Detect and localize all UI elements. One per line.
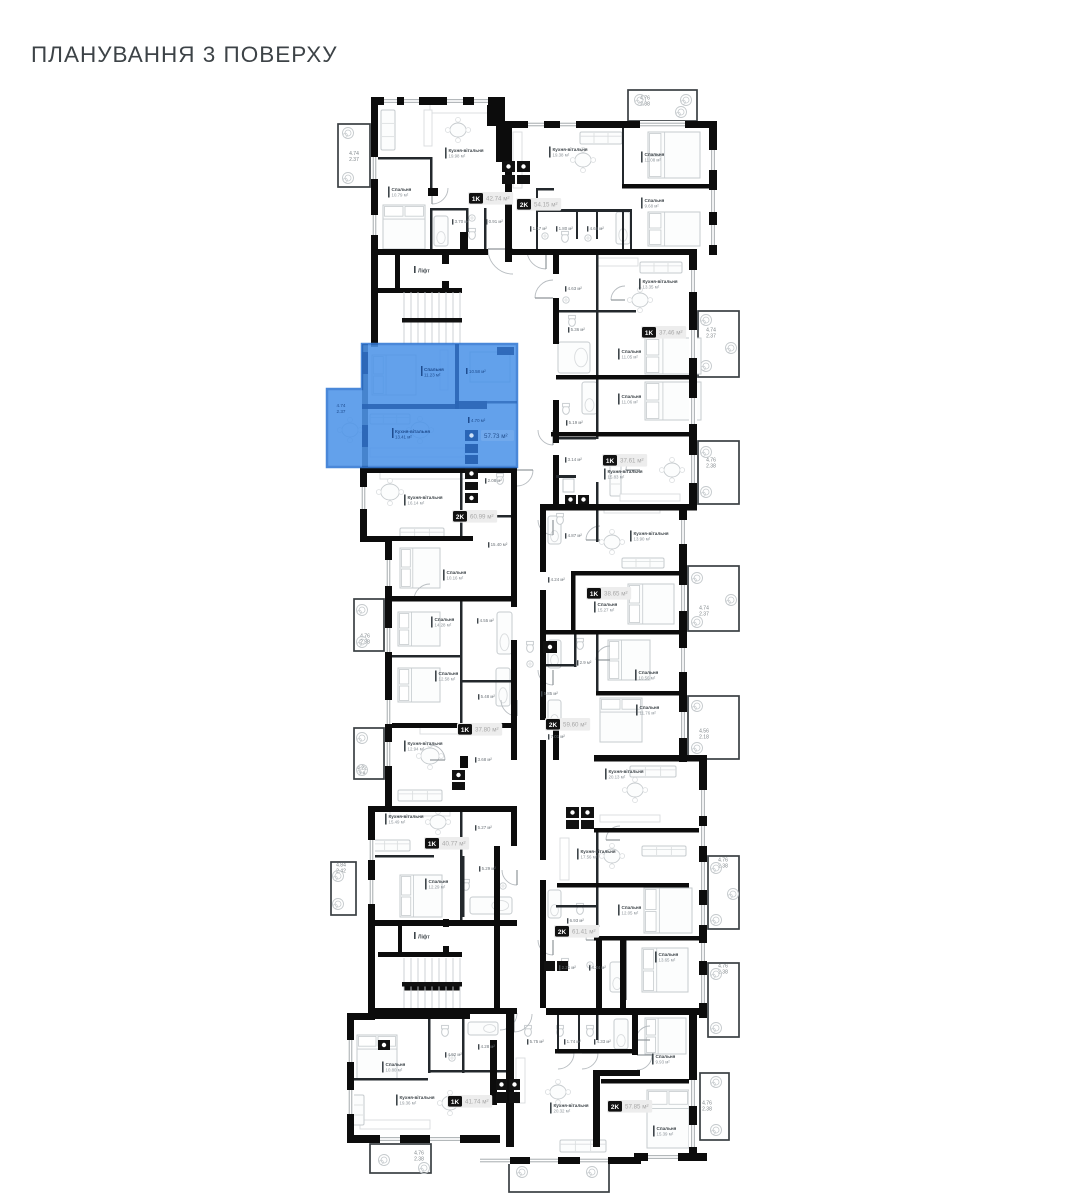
svg-text:13.90 м²: 13.90 м² — [634, 537, 651, 542]
svg-text:57.73 м²: 57.73 м² — [484, 433, 508, 440]
svg-text:12.94 м²: 12.94 м² — [408, 747, 425, 752]
svg-text:2.37: 2.37 — [337, 409, 346, 414]
svg-text:19.36 м²: 19.36 м² — [400, 1101, 417, 1106]
svg-text:1K: 1K — [451, 1099, 460, 1106]
svg-text:Спальня: Спальня — [622, 349, 642, 354]
svg-text:60.99 м²: 60.99 м² — [470, 514, 494, 521]
svg-text:Кухня-вітальня: Кухня-вітальня — [608, 469, 643, 474]
svg-text:Спальня: Спальня — [447, 570, 467, 575]
svg-text:0.91 м²: 0.91 м² — [489, 219, 504, 224]
svg-text:10.56 м²: 10.56 м² — [639, 676, 656, 681]
svg-text:Спальня: Спальня — [439, 671, 459, 676]
svg-text:15.49 м²: 15.49 м² — [389, 820, 406, 825]
svg-text:4.66 м²: 4.66 м² — [590, 226, 605, 231]
svg-text:13.65 м²: 13.65 м² — [659, 958, 676, 963]
svg-text:Кухня-вітальня: Кухня-вітальня — [643, 279, 678, 284]
svg-text:4.33 м²: 4.33 м² — [597, 1039, 612, 1044]
svg-text:20.32 м²: 20.32 м² — [554, 1109, 571, 1114]
svg-text:19.38 м²: 19.38 м² — [553, 153, 570, 158]
svg-text:ПЛАНУВАННЯ 3 ПОВЕРХУ: ПЛАНУВАННЯ 3 ПОВЕРХУ — [31, 42, 338, 67]
svg-text:Спальня: Спальня — [392, 187, 412, 192]
svg-text:1K: 1K — [590, 591, 599, 598]
svg-text:2.38: 2.38 — [706, 464, 716, 470]
svg-text:14.28 м²: 14.28 м² — [435, 623, 452, 628]
svg-text:1.17 м²: 1.17 м² — [533, 226, 548, 231]
svg-text:9.93 м²: 9.93 м² — [656, 1060, 671, 1065]
svg-text:1.74 м²: 1.74 м² — [567, 1039, 582, 1044]
svg-text:4.87 м²: 4.87 м² — [568, 533, 583, 538]
svg-text:2.37: 2.37 — [706, 334, 716, 340]
svg-text:4.74: 4.74 — [337, 403, 346, 408]
svg-text:10.80 м²: 10.80 м² — [386, 1068, 403, 1073]
svg-text:Кухня-вітальня: Кухня-вітальня — [554, 1103, 589, 1108]
svg-text:Кухня-вітальня: Кухня-вітальня — [400, 1095, 435, 1100]
svg-text:15.27 м²: 15.27 м² — [598, 608, 615, 613]
svg-text:10.16 м²: 10.16 м² — [447, 576, 464, 581]
svg-text:11.05 м²: 11.05 м² — [622, 355, 639, 360]
svg-text:20.13 м²: 20.13 м² — [609, 775, 626, 780]
svg-text:54.15 м²: 54.15 м² — [534, 202, 558, 209]
svg-text:Спальня: Спальня — [598, 602, 618, 607]
svg-text:11.76 м²: 11.76 м² — [640, 711, 657, 716]
svg-text:Спальня: Спальня — [386, 1062, 406, 1067]
svg-text:59.60 м²: 59.60 м² — [563, 722, 587, 729]
svg-text:40.77 м²: 40.77 м² — [442, 841, 466, 848]
svg-text:Кухня-вітальня: Кухня-вітальня — [389, 814, 424, 819]
svg-text:Кухня-вітальня: Кухня-вітальня — [408, 495, 443, 500]
svg-text:41.74 м²: 41.74 м² — [465, 1099, 489, 1106]
svg-text:1.80 м²: 1.80 м² — [559, 226, 574, 231]
svg-text:4.24 м²: 4.24 м² — [551, 577, 566, 582]
svg-text:3.14 м²: 3.14 м² — [568, 457, 583, 462]
svg-text:Ліфт: Ліфт — [418, 934, 430, 941]
svg-text:Спальня: Спальня — [640, 705, 660, 710]
svg-text:Спальня: Спальня — [429, 879, 449, 884]
svg-text:17.56 м²: 17.56 м² — [581, 855, 598, 860]
svg-text:12.29 м²: 12.29 м² — [429, 885, 446, 890]
svg-text:2K: 2K — [456, 514, 465, 521]
svg-text:4.55 м²: 4.55 м² — [480, 618, 495, 623]
svg-text:5.48 м²: 5.48 м² — [481, 694, 496, 699]
svg-text:4.92 м²: 4.92 м² — [448, 1052, 463, 1057]
svg-text:4.24 м²: 4.24 м² — [592, 965, 607, 970]
svg-text:Спальня: Спальня — [645, 152, 665, 157]
svg-text:Кухня-вітальня: Кухня-вітальня — [408, 741, 443, 746]
svg-text:2K: 2K — [549, 722, 558, 729]
svg-text:3.70 м²: 3.70 м² — [455, 219, 470, 224]
svg-text:13.35 м²: 13.35 м² — [643, 285, 660, 290]
svg-text:5.75 м²: 5.75 м² — [530, 1039, 545, 1044]
svg-text:Спальня: Спальня — [657, 1126, 677, 1131]
svg-text:42.74 м²: 42.74 м² — [486, 196, 510, 203]
svg-text:1K: 1K — [645, 330, 654, 337]
svg-text:Кухня-вітальня: Кухня-вітальня — [553, 147, 588, 152]
svg-text:3.68 м²: 3.68 м² — [478, 757, 493, 762]
svg-text:2K: 2K — [558, 929, 567, 936]
svg-text:2.08 м²: 2.08 м² — [488, 478, 503, 483]
svg-text:Кухня-вітальня: Кухня-вітальня — [449, 148, 484, 153]
svg-text:Спальня: Спальня — [659, 952, 679, 957]
svg-text:2.37: 2.37 — [349, 157, 359, 163]
svg-text:38.65 м²: 38.65 м² — [604, 591, 628, 598]
svg-text:1K: 1K — [461, 727, 470, 734]
svg-text:Спальня: Спальня — [622, 905, 642, 910]
svg-text:13.41 м²: 13.41 м² — [395, 435, 412, 440]
svg-text:5.29 м²: 5.29 м² — [482, 866, 497, 871]
svg-text:2K: 2K — [520, 202, 529, 209]
svg-text:2.38: 2.38 — [414, 1157, 424, 1163]
svg-text:11.08 м²: 11.08 м² — [645, 158, 662, 163]
svg-text:5.27 м²: 5.27 м² — [478, 825, 493, 830]
svg-text:4.63 м²: 4.63 м² — [568, 286, 583, 291]
svg-text:7.01 м²: 7.01 м² — [551, 734, 566, 739]
svg-text:9.68 м²: 9.68 м² — [645, 204, 660, 209]
svg-text:Спальня: Спальня — [639, 670, 659, 675]
svg-text:57.85 м²: 57.85 м² — [625, 1104, 649, 1111]
svg-text:2.37: 2.37 — [699, 612, 709, 618]
svg-text:Спальня: Спальня — [622, 394, 642, 399]
svg-text:12.05 м²: 12.05 м² — [622, 911, 639, 916]
svg-text:19.98 м²: 19.98 м² — [449, 154, 466, 159]
svg-text:1K: 1K — [606, 458, 615, 465]
svg-text:6.93 м²: 6.93 м² — [570, 918, 585, 923]
svg-text:10.58 м²: 10.58 м² — [469, 369, 486, 374]
svg-text:2.9 м²: 2.9 м² — [580, 660, 592, 665]
svg-text:Кухня-вітальня: Кухня-вітальня — [395, 429, 430, 434]
svg-text:Кухня-вітальня: Кухня-вітальня — [634, 531, 669, 536]
svg-text:10.79 м²: 10.79 м² — [392, 193, 409, 198]
svg-text:15.40 м²: 15.40 м² — [491, 542, 508, 547]
svg-text:4.70 м²: 4.70 м² — [471, 418, 486, 423]
svg-text:2.38: 2.38 — [702, 1107, 712, 1113]
svg-text:5.36 м²: 5.36 м² — [571, 327, 586, 332]
svg-text:Спальня: Спальня — [656, 1054, 676, 1059]
svg-text:12.58 м²: 12.58 м² — [439, 677, 456, 682]
svg-text:1K: 1K — [428, 841, 437, 848]
svg-text:11.06 м²: 11.06 м² — [622, 400, 639, 405]
svg-text:2K: 2K — [611, 1104, 620, 1111]
svg-text:4.28 м²: 4.28 м² — [481, 1044, 496, 1049]
svg-text:5.85 м²: 5.85 м² — [544, 691, 559, 696]
svg-text:37.46 м²: 37.46 м² — [659, 330, 683, 337]
svg-text:2.21 м²: 2.21 м² — [562, 965, 577, 970]
svg-text:15.39 м²: 15.39 м² — [657, 1132, 674, 1137]
svg-text:1K: 1K — [472, 196, 481, 203]
svg-text:16.14 м²: 16.14 м² — [408, 501, 425, 506]
svg-text:61.41 м²: 61.41 м² — [572, 929, 596, 936]
svg-text:5.19 м²: 5.19 м² — [569, 420, 584, 425]
svg-text:Кухня-вітальня: Кухня-вітальня — [581, 849, 616, 854]
svg-text:11.23 м²: 11.23 м² — [424, 373, 441, 378]
svg-text:Ліфт: Ліфт — [418, 268, 430, 275]
svg-text:Спальня: Спальня — [645, 198, 665, 203]
svg-text:15.83 м²: 15.83 м² — [608, 475, 625, 480]
svg-text:Спальня: Спальня — [435, 617, 455, 622]
svg-text:37.80 м²: 37.80 м² — [475, 727, 499, 734]
svg-text:37.61 м²: 37.61 м² — [620, 458, 644, 465]
svg-text:Спальня: Спальня — [424, 367, 444, 372]
svg-text:Кухня-вітальня: Кухня-вітальня — [609, 769, 644, 774]
svg-text:2.18: 2.18 — [699, 735, 709, 741]
